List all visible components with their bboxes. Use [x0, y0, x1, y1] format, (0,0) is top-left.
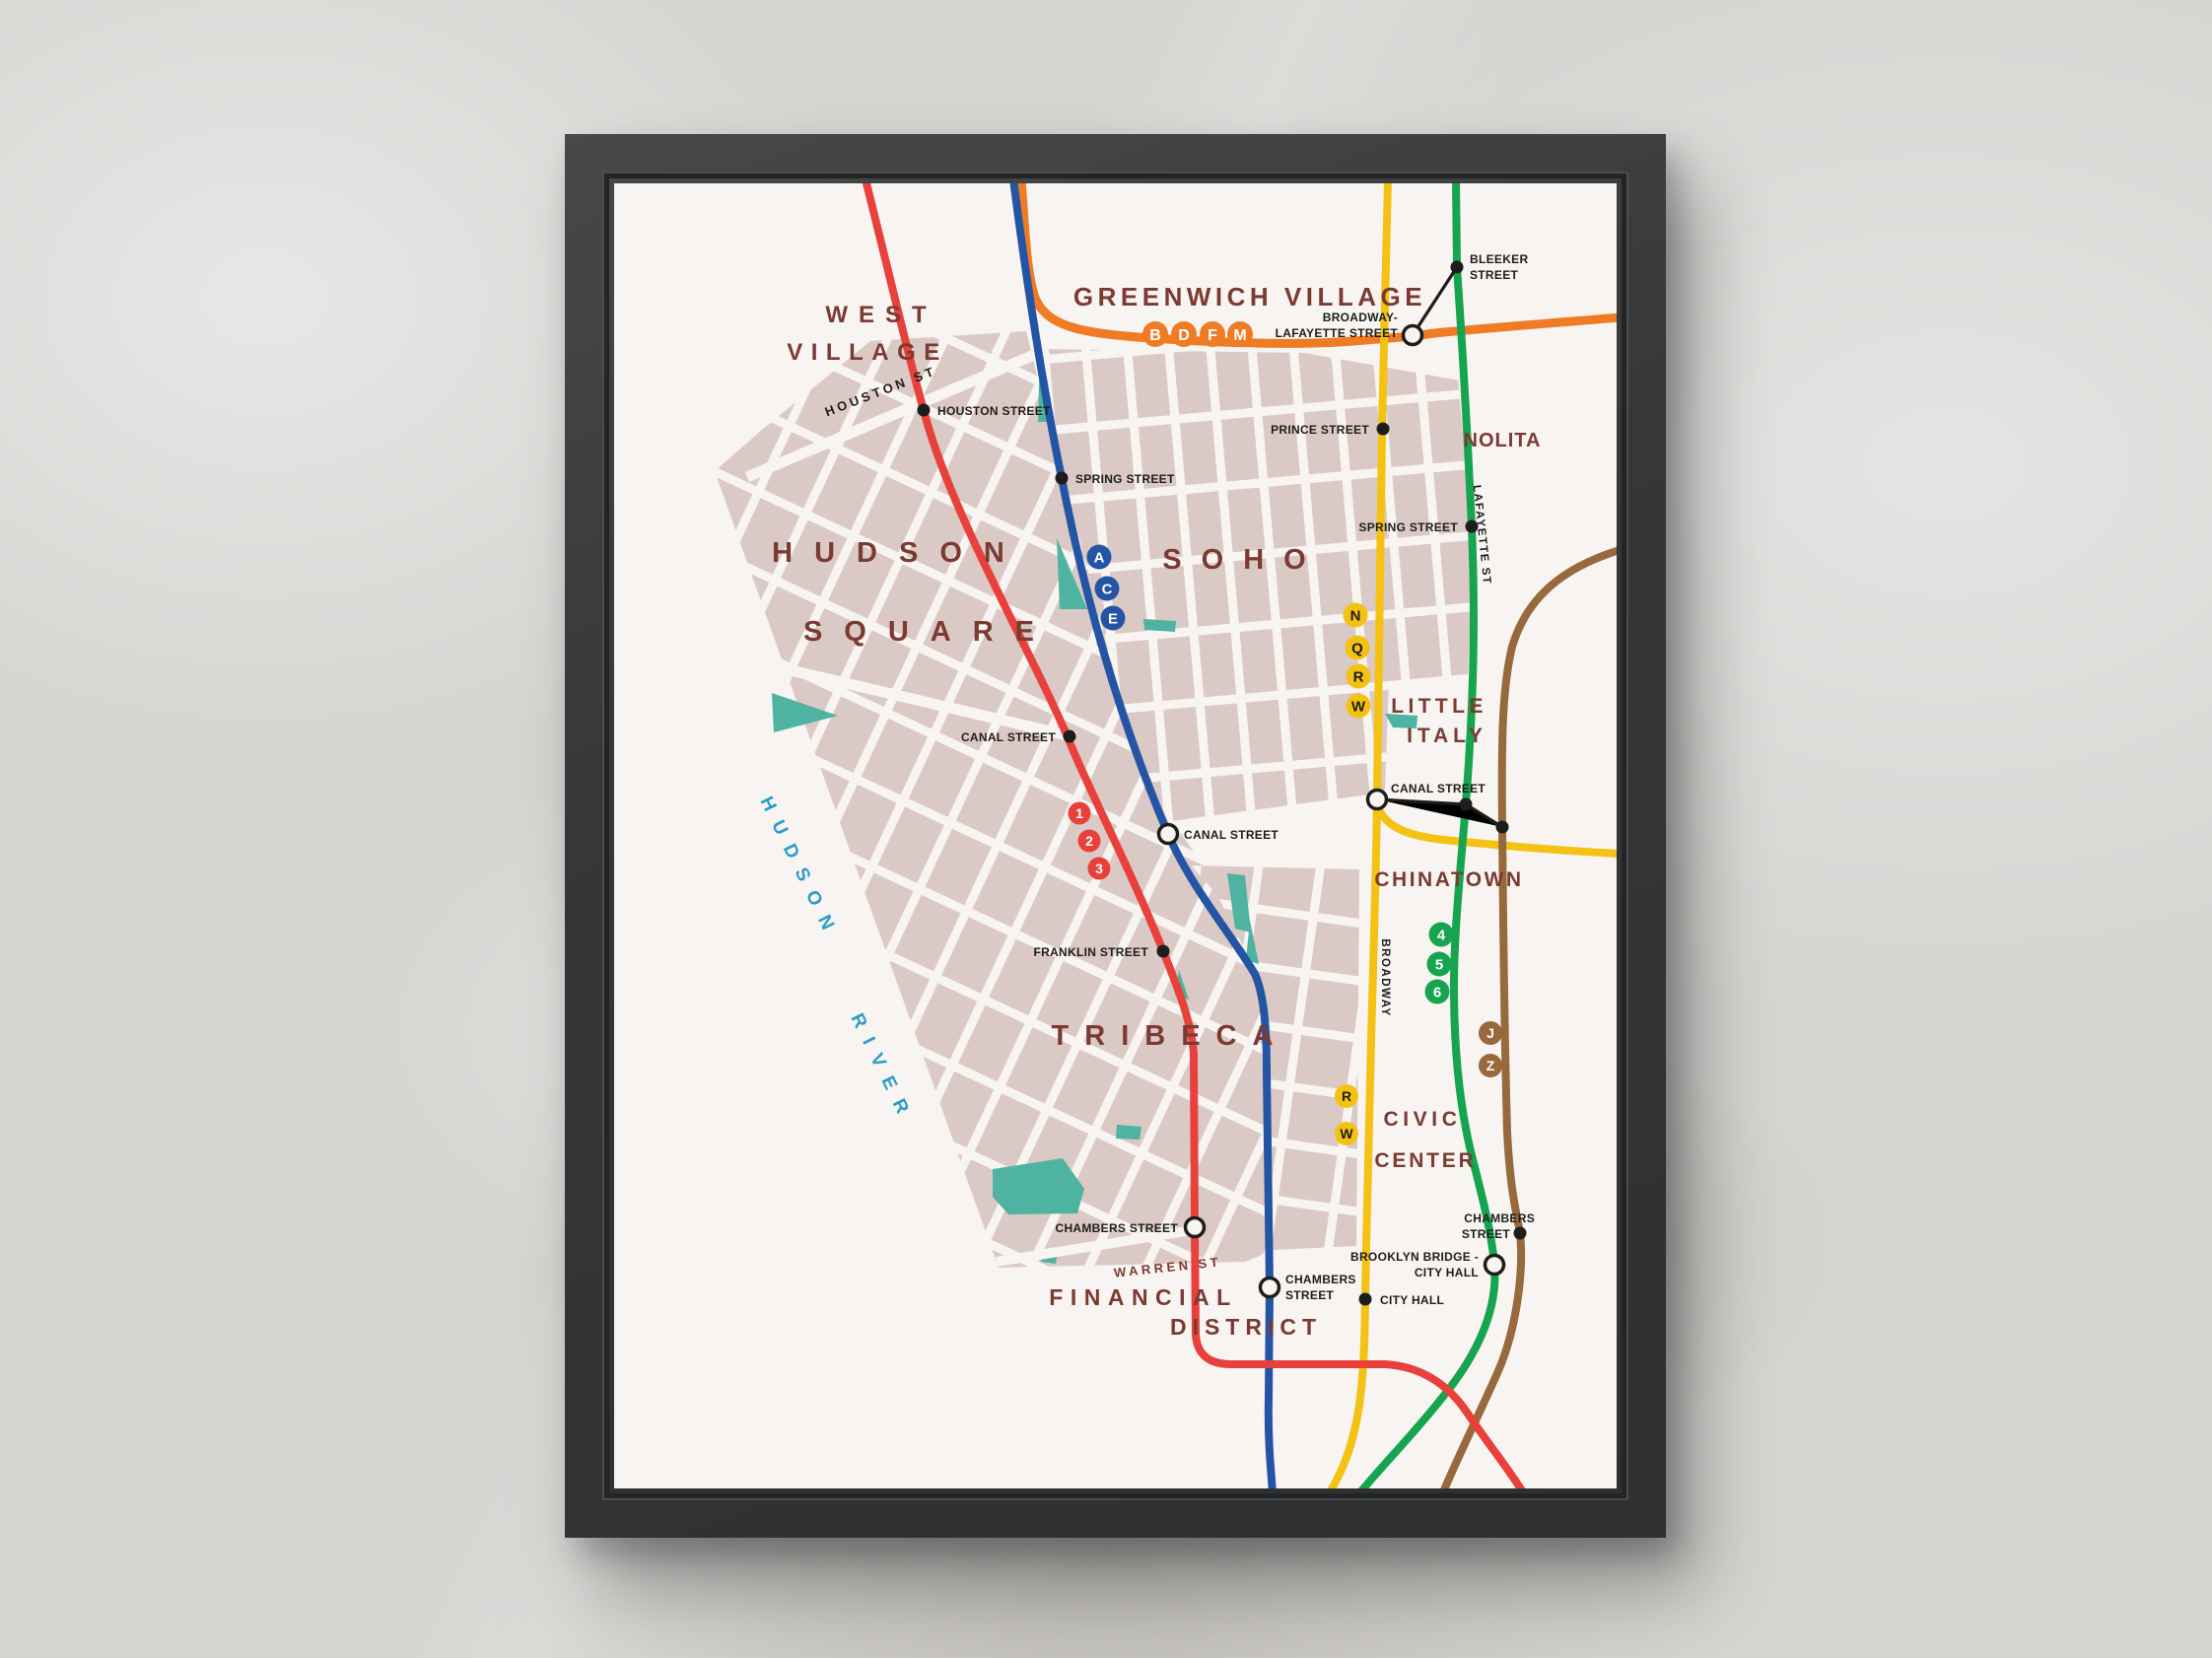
- station-label-spring-6: SPRING STREET: [1358, 520, 1458, 534]
- label-hudson-square-2: SQUARE: [803, 616, 1056, 648]
- station-label-houston: HOUSTON STREET: [937, 404, 1051, 418]
- label-tribeca: TRIBECA: [1052, 1020, 1289, 1052]
- badge-2: 2: [1085, 833, 1093, 849]
- station-circle-chambers-ace: [1261, 1278, 1279, 1297]
- label-hudson-square-1: HUDSON: [772, 537, 1026, 569]
- station-dot-houston: [918, 404, 931, 417]
- map-svg: B D F M A C E N: [614, 183, 1617, 1488]
- station-dot-franklin: [1157, 945, 1170, 958]
- station-label-city-hall: CITY HALL: [1380, 1293, 1444, 1307]
- badges-456: 4 5 6: [1425, 923, 1454, 1004]
- station-label-brooklyn-bridge-2: CITY HALL: [1415, 1266, 1479, 1279]
- badge-1: 1: [1075, 805, 1083, 821]
- station-label-bleeker-2: STREET: [1470, 268, 1519, 282]
- label-financial-district-2: DISTRICT: [1170, 1314, 1322, 1340]
- station-label-franklin: FRANKLIN STREET: [1034, 945, 1149, 959]
- station-label-bleeker-1: BLEEKER: [1470, 252, 1528, 266]
- badge-w2: W: [1340, 1126, 1353, 1141]
- label-west-village-2: VILLAGE: [787, 339, 948, 366]
- station-label-chambers-jz-2: STREET: [1462, 1227, 1511, 1241]
- station-dot-canal-brown: [1496, 821, 1509, 834]
- badge-j: J: [1486, 1025, 1494, 1041]
- label-little-italy-1: LITTLE: [1391, 695, 1487, 718]
- badge-3: 3: [1095, 861, 1103, 876]
- station-label-chambers-ace-1: CHAMBERS: [1285, 1273, 1356, 1286]
- station-label-chambers-jz-1: CHAMBERS: [1464, 1211, 1535, 1225]
- station-label-chambers-ace-2: STREET: [1285, 1288, 1335, 1302]
- subway-map-poster: B D F M A C E N: [614, 183, 1617, 1488]
- badge-d: D: [1178, 327, 1190, 344]
- badge-r: R: [1353, 668, 1364, 685]
- station-circle-chambers-123: [1186, 1218, 1205, 1237]
- label-west-village-1: WEST: [825, 302, 936, 328]
- label-civic-center-1: CIVIC: [1383, 1108, 1461, 1131]
- station-circle-canal-ace: [1159, 825, 1178, 844]
- station-label-spring-ace: SPRING STREET: [1075, 472, 1175, 486]
- label-financial-district-1: FINANCIAL: [1049, 1284, 1237, 1310]
- badge-5: 5: [1435, 956, 1443, 973]
- badge-4: 4: [1437, 927, 1446, 943]
- station-dot-canal-green: [1460, 798, 1473, 811]
- station-dot-prince: [1377, 423, 1390, 436]
- badge-m: M: [1233, 327, 1246, 344]
- park: [1116, 1125, 1141, 1140]
- station-label-chambers-123: CHAMBERS STREET: [1055, 1221, 1178, 1235]
- badge-q: Q: [1351, 640, 1363, 656]
- station-label-broadway-lafayette-1: BROADWAY-: [1323, 311, 1398, 324]
- station-label-brooklyn-bridge-1: BROOKLYN BRIDGE -: [1350, 1250, 1479, 1264]
- station-label-prince: PRINCE STREET: [1271, 423, 1369, 437]
- station-dot-spring-ace: [1056, 472, 1069, 485]
- station-circle-broadway-lafayette: [1404, 326, 1422, 345]
- station-dot-bleeker: [1451, 261, 1464, 274]
- station-dot-city-hall: [1359, 1293, 1372, 1306]
- station-circle-canal-nqrw: [1368, 791, 1387, 809]
- badge-w: W: [1351, 698, 1366, 715]
- station-dot-canal-123: [1064, 730, 1076, 743]
- picture-frame: B D F M A C E N: [565, 134, 1666, 1538]
- label-chinatown: CHINATOWN: [1374, 868, 1523, 891]
- badge-c: C: [1102, 581, 1113, 597]
- station-label-canal-ace: CANAL STREET: [1184, 828, 1279, 842]
- label-soho: SOHO: [1162, 544, 1325, 576]
- badge-r2: R: [1342, 1088, 1351, 1104]
- badge-e: E: [1108, 610, 1118, 627]
- label-little-italy-2: ITALY: [1407, 725, 1487, 747]
- badge-n: N: [1350, 607, 1361, 624]
- badge-z: Z: [1486, 1058, 1495, 1073]
- park: [1143, 619, 1176, 632]
- badge-b: B: [1149, 327, 1161, 344]
- badge-f: F: [1208, 327, 1217, 344]
- station-dot-chambers-jz: [1514, 1227, 1527, 1240]
- station-label-canal-123: CANAL STREET: [961, 730, 1056, 744]
- station-label-canal-nqrw: CANAL STREET: [1391, 782, 1486, 795]
- label-civic-center-2: CENTER: [1374, 1149, 1476, 1172]
- label-nolita: NOLITA: [1464, 430, 1542, 451]
- wall: B D F M A C E N: [0, 0, 2212, 1658]
- badge-6: 6: [1433, 984, 1441, 1001]
- label-greenwich-village: GREENWICH VILLAGE: [1073, 282, 1426, 311]
- badge-a: A: [1094, 549, 1105, 566]
- station-circle-brooklyn-bridge: [1486, 1256, 1504, 1275]
- station-label-broadway-lafayette-2: LAFAYETTE STREET: [1276, 326, 1399, 340]
- label-broadway: BROADWAY: [1379, 938, 1391, 1016]
